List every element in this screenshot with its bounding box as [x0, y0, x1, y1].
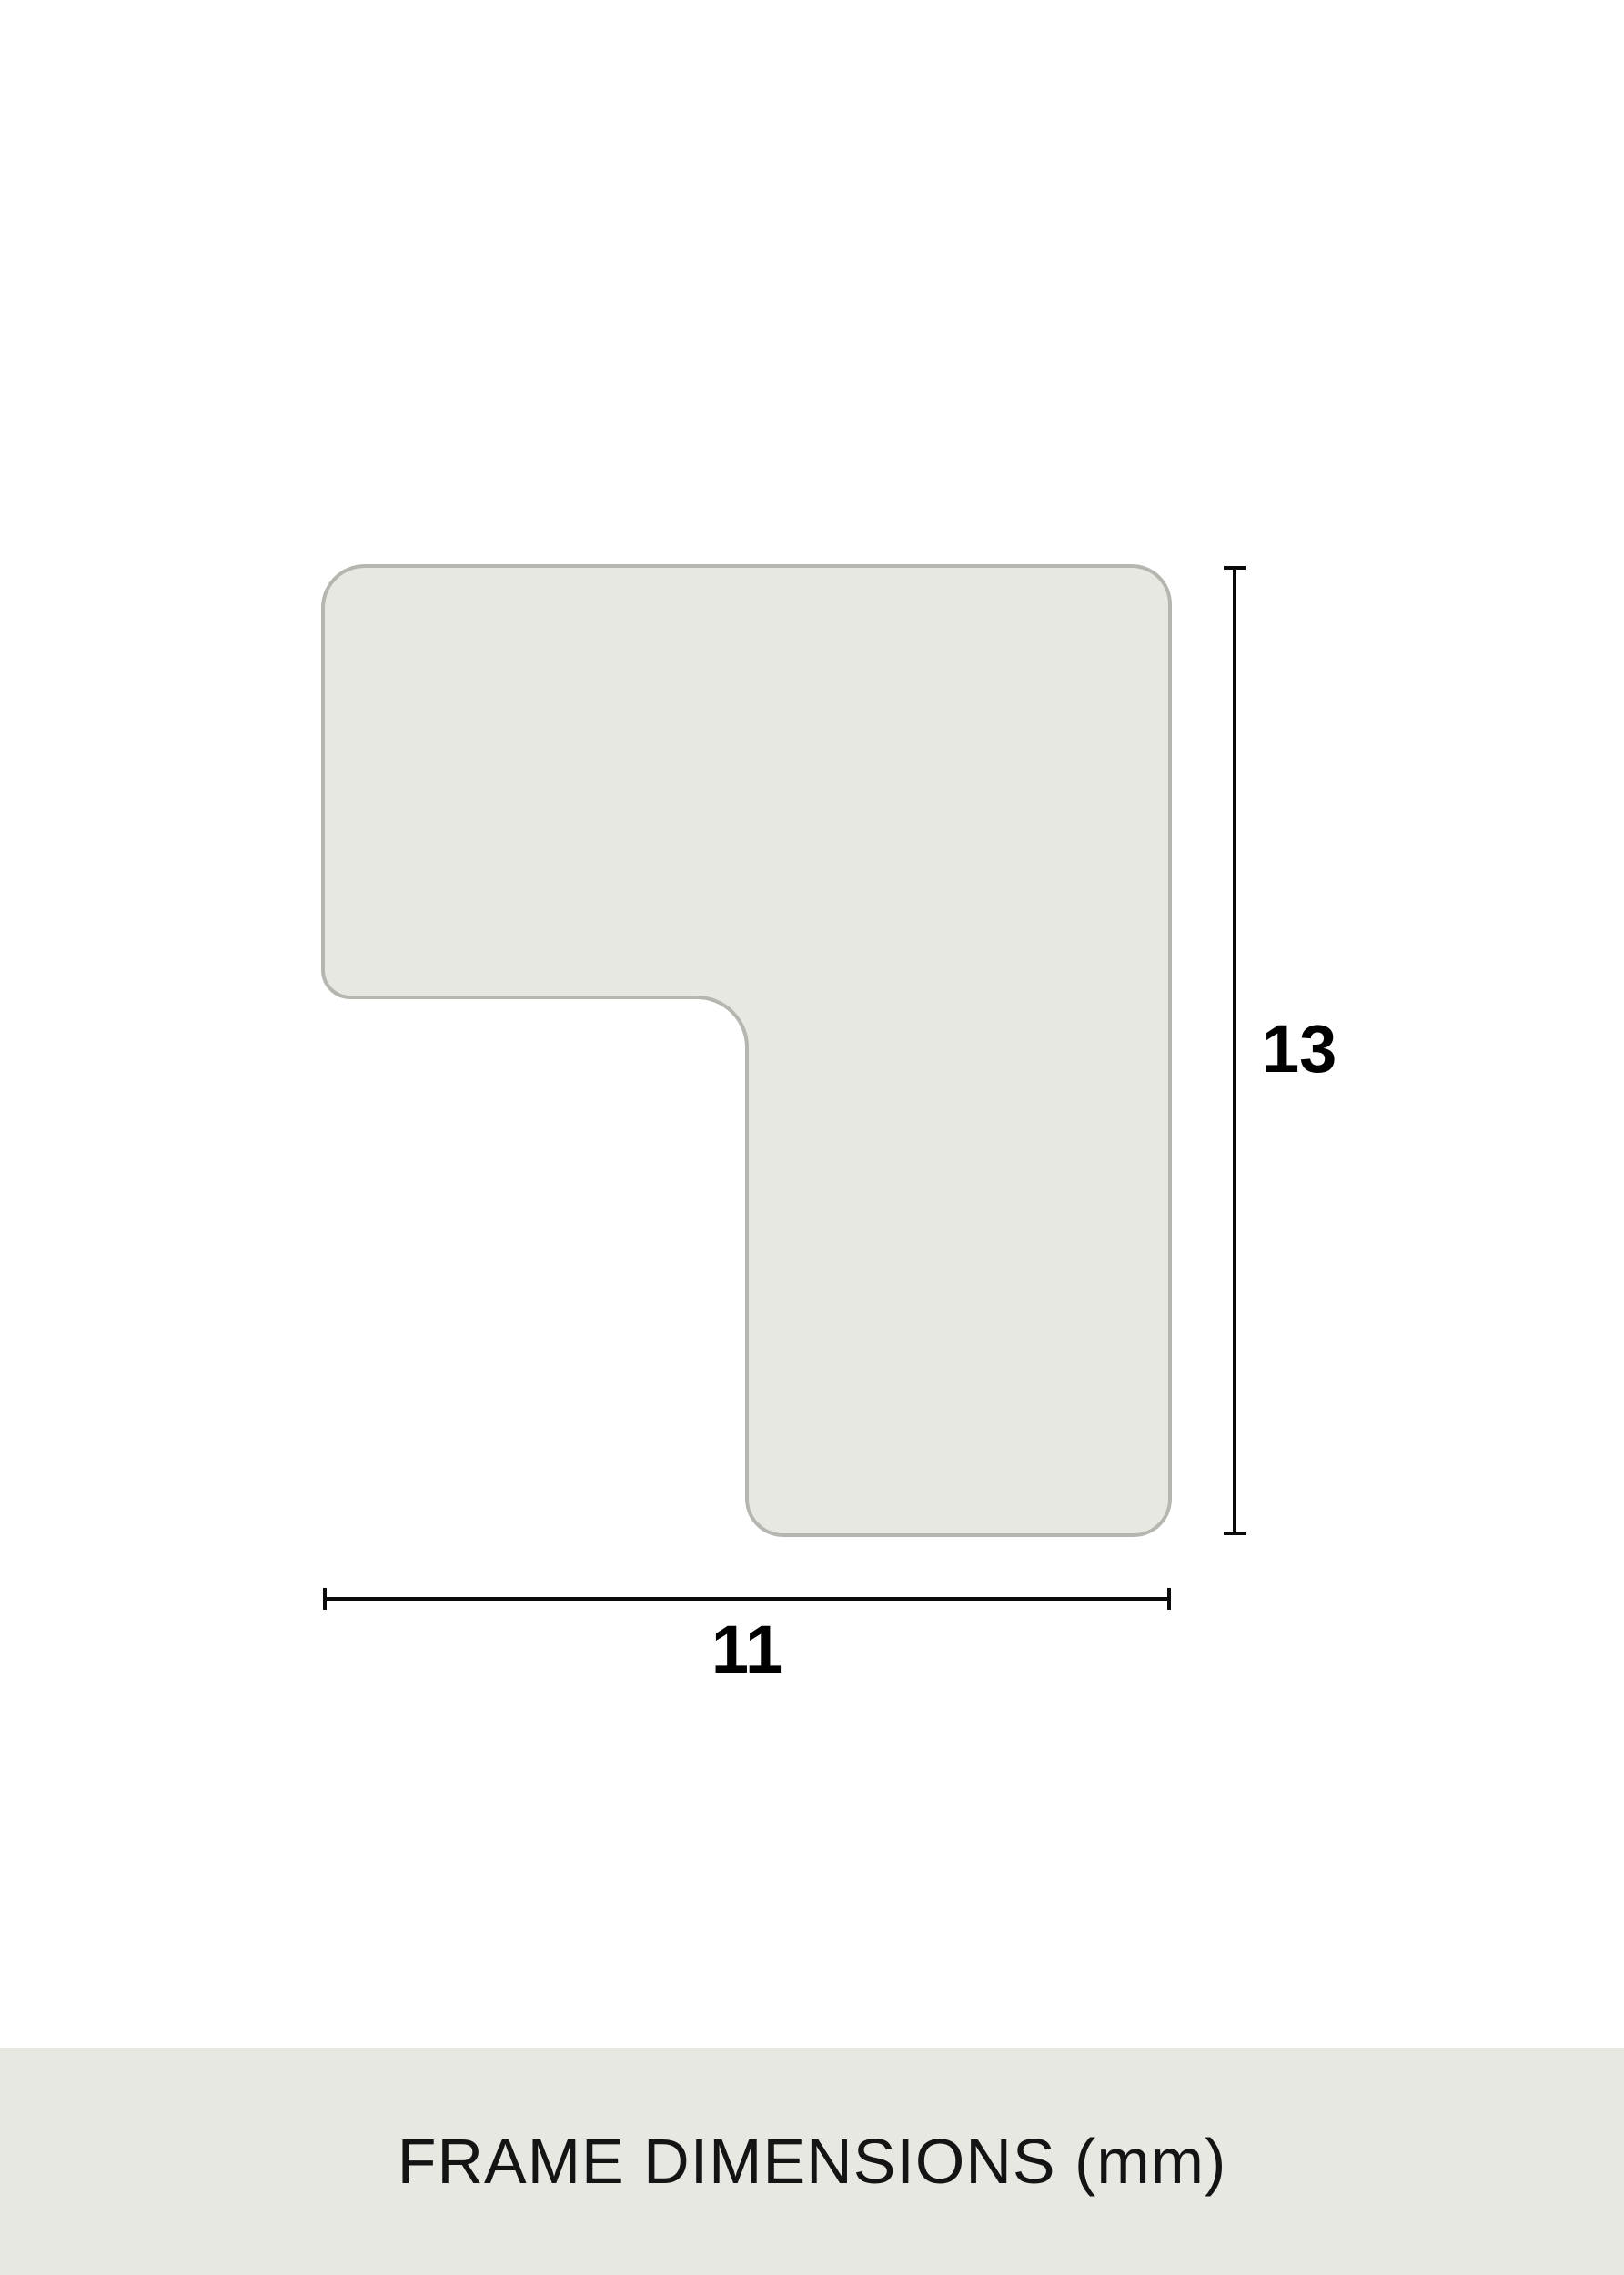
frame-profile-shape [323, 566, 1170, 1535]
height-dimension-value: 13 [1262, 1016, 1337, 1083]
width-dimension-line [325, 1588, 1169, 1610]
footer-caption-bar: FRAME DIMENSIONS (mm) [0, 2047, 1624, 2275]
width-dimension-value: 11 [711, 1616, 782, 1683]
diagram-canvas [0, 0, 1624, 2275]
height-dimension-line [1224, 568, 1246, 1533]
footer-caption-text: FRAME DIMENSIONS (mm) [398, 2125, 1227, 2198]
